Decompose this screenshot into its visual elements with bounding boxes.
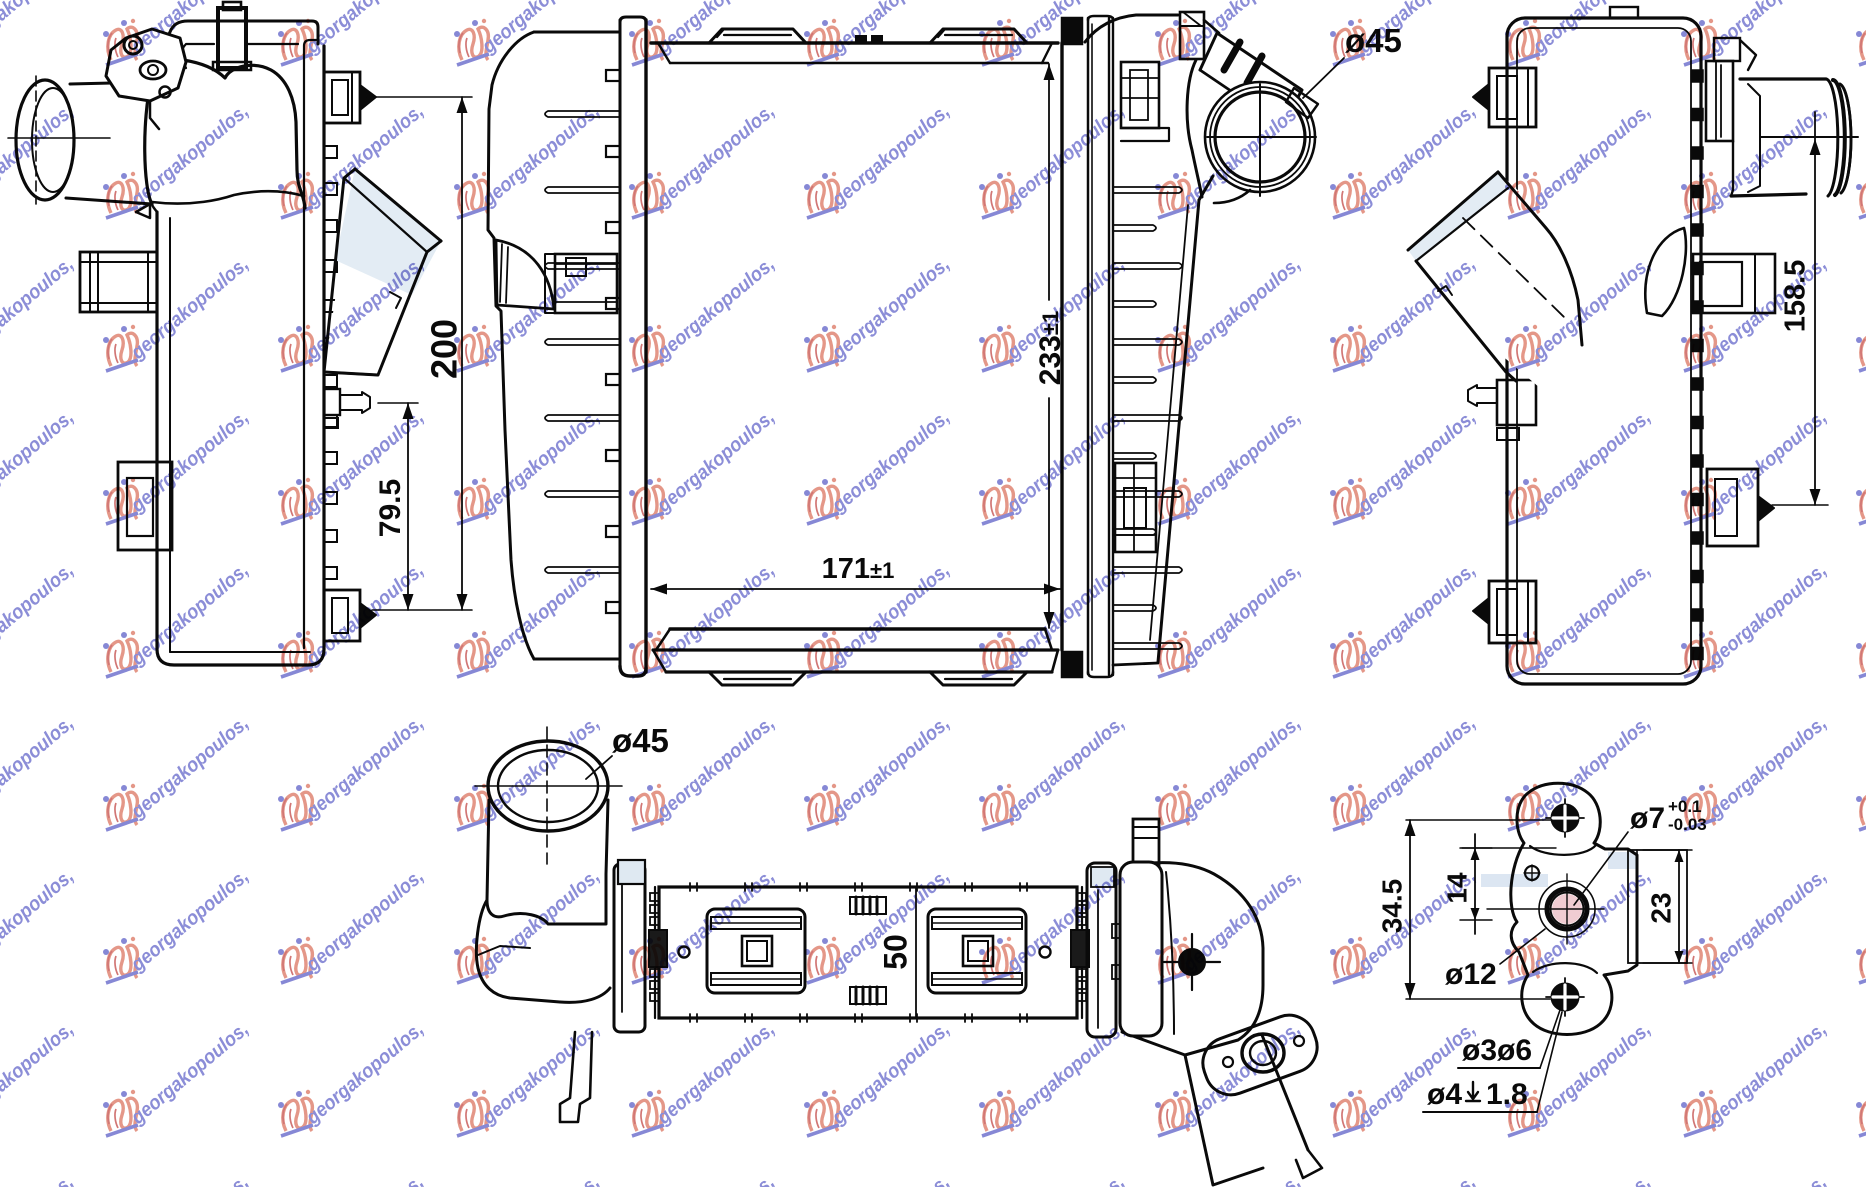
svg-text:23: 23	[1645, 892, 1676, 923]
svg-text:79.5: 79.5	[374, 479, 407, 537]
svg-text:ø45: ø45	[612, 722, 669, 759]
svg-text:ø4: ø4	[1427, 1078, 1462, 1111]
svg-text:ø12: ø12	[1445, 958, 1497, 991]
svg-text:171±1: 171±1	[822, 553, 895, 585]
svg-text:ø7: ø7	[1630, 802, 1665, 835]
